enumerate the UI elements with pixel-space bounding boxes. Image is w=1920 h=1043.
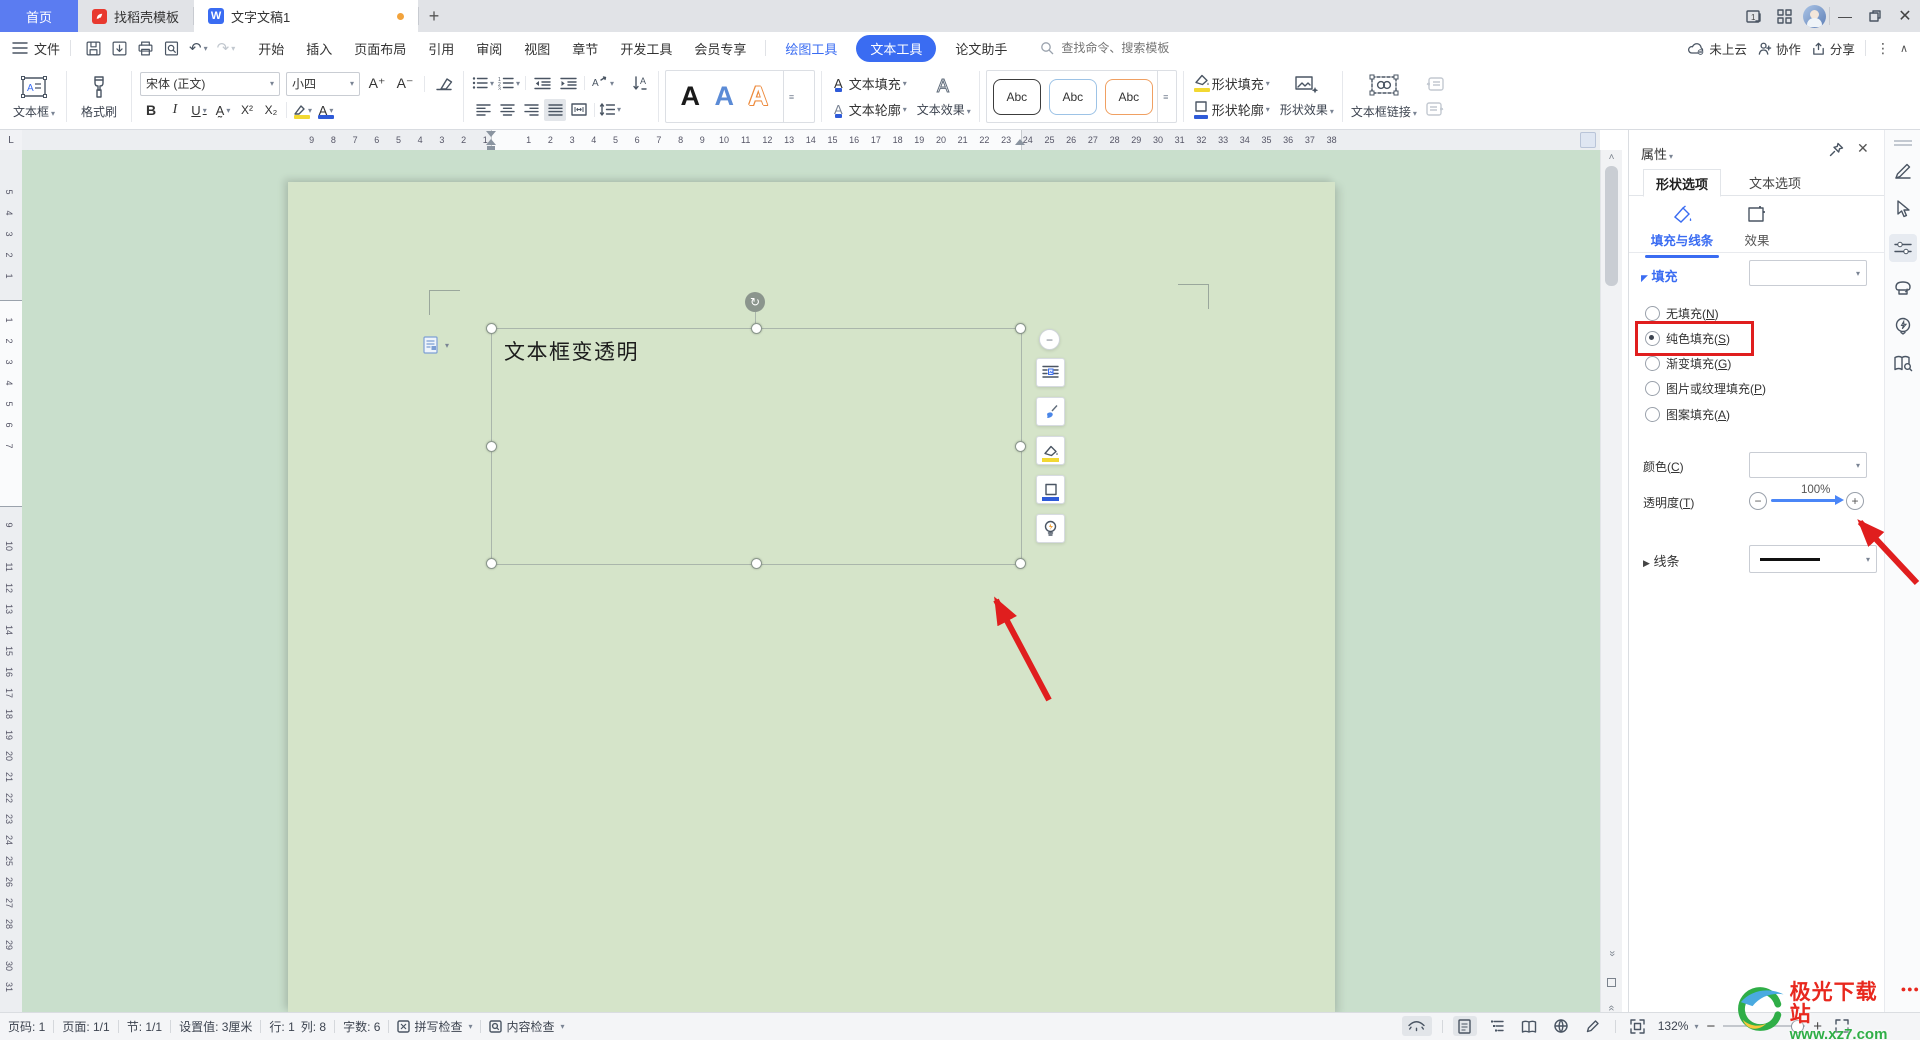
vruler-number: 28 xyxy=(4,917,14,931)
vruler-number: 29 xyxy=(4,938,14,952)
zoom-level[interactable]: 132%▾ xyxy=(1658,1019,1699,1033)
menu-item-3[interactable]: 引用 xyxy=(419,36,463,61)
hruler-number: 26 xyxy=(1064,135,1078,145)
effects-icon xyxy=(1746,204,1768,226)
status-setting-value[interactable]: 设置值: 3厘米 xyxy=(179,1018,252,1035)
vruler-number: 2 xyxy=(4,248,14,262)
handle-bottom-right[interactable] xyxy=(1015,558,1026,569)
hruler-number: 3 xyxy=(435,135,449,145)
unsaved-dot xyxy=(397,13,404,20)
hruler-number: 7 xyxy=(652,135,666,145)
menu-item-4[interactable]: 审阅 xyxy=(467,36,511,61)
highlight-color-button[interactable]: ▾ xyxy=(291,99,313,121)
print-button[interactable] xyxy=(137,40,154,57)
hruler-number: 28 xyxy=(1108,135,1122,145)
menu-item-5[interactable]: 视图 xyxy=(515,36,559,61)
handle-mid-right[interactable] xyxy=(1015,441,1026,452)
transparency-increase-button[interactable]: + xyxy=(1846,492,1864,510)
collaborate-label: 协作 xyxy=(1776,39,1801,58)
properties-sliders-icon[interactable] xyxy=(1889,234,1917,262)
decrease-font-button[interactable]: A⁻ xyxy=(394,73,416,95)
fill-section-header[interactable]: ◤ 填充 xyxy=(1641,266,1678,285)
increase-indent-button[interactable] xyxy=(557,72,579,94)
search-input[interactable] xyxy=(1059,40,1203,56)
hruler-number: 14 xyxy=(804,135,818,145)
shape-gallery-more-button[interactable]: ≡ xyxy=(1157,71,1174,122)
save-button[interactable] xyxy=(85,40,102,57)
hruler-number: 21 xyxy=(956,135,970,145)
transparency-label: 透明度(T) xyxy=(1643,494,1694,511)
vruler-number: 19 xyxy=(4,728,14,742)
search-icon xyxy=(1040,41,1054,55)
site-watermark: 极光下载站 www.xz7.com ●●● xyxy=(1735,982,1920,1038)
home-tab-label: 首页 xyxy=(26,7,52,26)
menu-item-8[interactable]: 会员专享 xyxy=(685,36,755,61)
status-page-count: 页面: 1/1 xyxy=(62,1018,109,1035)
share-icon xyxy=(1811,41,1826,56)
gallery-more-button[interactable]: ≡ xyxy=(783,71,800,122)
textbox-link-icon xyxy=(1367,73,1401,97)
vruler-number: 30 xyxy=(4,959,14,973)
vertical-ruler: 5432112345679101112131415161718192021222… xyxy=(0,150,22,1012)
align-right-button[interactable] xyxy=(520,99,542,121)
hruler-number: 7 xyxy=(348,135,362,145)
hruler-number: 15 xyxy=(826,135,840,145)
collapse-ribbon-icon[interactable]: ∧ xyxy=(1900,42,1908,55)
share-label: 分享 xyxy=(1830,39,1855,58)
text-outline-button[interactable]: A 文本轮廓▾ xyxy=(830,99,909,121)
vruler-number: 1 xyxy=(4,269,14,283)
hruler-number: 31 xyxy=(1173,135,1187,145)
next-link-button[interactable] xyxy=(1425,101,1445,117)
status-line: 行: 1 xyxy=(269,1018,294,1035)
status-page-number: 页码: 1 xyxy=(8,1018,45,1035)
quick-effects-icon[interactable] xyxy=(1892,315,1914,337)
color-dropdown[interactable]: ▾ xyxy=(1749,452,1867,478)
hruler-number: 18 xyxy=(891,135,905,145)
workspace-grid-icon[interactable] xyxy=(1769,0,1799,32)
mini-shape-outline-button[interactable] xyxy=(1036,475,1065,504)
document-canvas[interactable] xyxy=(22,150,1600,1012)
file-menu[interactable]: 文件 xyxy=(34,39,60,58)
vruler-number: 17 xyxy=(4,686,14,700)
vruler-number: 3 xyxy=(4,355,14,369)
text-effects-button[interactable]: 文本效果▾ xyxy=(917,101,971,118)
menu-item-2[interactable]: 页面布局 xyxy=(345,36,415,61)
svg-text:3: 3 xyxy=(498,87,501,91)
sort-button[interactable]: A xyxy=(628,72,650,94)
shape-outline-button[interactable]: 形状轮廓▾ xyxy=(1192,99,1272,121)
red-highlight-box xyxy=(1635,321,1754,356)
bullet-list-button[interactable]: ▾ xyxy=(472,72,494,94)
wps-writer-icon: W xyxy=(208,8,224,24)
collaborate-button[interactable]: 协作 xyxy=(1757,39,1801,58)
subtab-fill-line[interactable]: 填充与线条 xyxy=(1645,204,1719,258)
home-tab[interactable]: 首页 xyxy=(0,0,78,32)
single-window-mode-icon[interactable]: 1 xyxy=(1739,0,1769,32)
tab-stop-selector[interactable]: L xyxy=(0,130,22,150)
text-boundary-mark-right xyxy=(1178,284,1209,309)
redo-button[interactable]: ↷▾ xyxy=(217,39,236,57)
fill-option-label-3[interactable]: 图片或纹理填充(P) xyxy=(1666,380,1766,397)
tab-shape-options[interactable]: 形状选项 xyxy=(1643,169,1721,197)
content-check-button[interactable]: 内容检查▾ xyxy=(489,1018,564,1035)
vruler-number: 12 xyxy=(4,581,14,595)
vruler-number: 24 xyxy=(4,833,14,847)
text-effects-icon: A xyxy=(933,75,955,95)
text-format-group: A 文本填充▾ A 文本轮廓▾ xyxy=(826,66,913,127)
paragraph-group: ▾ 123▾ A▾ A xyxy=(468,66,654,127)
hruler-number: 30 xyxy=(1151,135,1165,145)
layout-options-button[interactable]: ▾ xyxy=(423,336,449,355)
vruler-number: 6 xyxy=(4,418,14,432)
menu-bar: 文件 ↶▾ ↷▾ 开始插入页面布局引用审阅视图章节开发工具会员专享 绘图工具 文… xyxy=(0,32,1920,64)
hruler-number: 16 xyxy=(847,135,861,145)
svg-text:A: A xyxy=(937,76,949,95)
textbox-text[interactable]: 文本框变透明 xyxy=(504,336,639,366)
hruler-number: 8 xyxy=(326,135,340,145)
format-painter-label: 格式刷 xyxy=(81,103,117,120)
shape-style-blue[interactable]: Abc xyxy=(1049,79,1097,115)
docer-icon xyxy=(92,9,107,24)
character-scale-button[interactable]: A▾ xyxy=(590,72,614,94)
shape-style-black[interactable]: Abc xyxy=(993,79,1041,115)
align-left-button[interactable] xyxy=(472,99,494,121)
subscript-button[interactable]: X₂ xyxy=(260,99,282,121)
menu-item-paper-assistant[interactable]: 论文助手 xyxy=(946,36,1016,61)
hruler-number: 37 xyxy=(1303,135,1317,145)
vruler-number: 15 xyxy=(4,644,14,658)
hruler-number: 34 xyxy=(1238,135,1252,145)
menu-item-6[interactable]: 章节 xyxy=(563,36,607,61)
watermark-logo xyxy=(1735,982,1786,1036)
shape-effects-button[interactable]: 形状效果▾ xyxy=(1280,101,1334,118)
hamburger-icon[interactable]: 文件 xyxy=(12,39,60,58)
vruler-number: 14 xyxy=(4,623,14,637)
shape-effects-icon xyxy=(1294,75,1320,95)
font-size-select[interactable]: 小四▾ xyxy=(286,72,360,96)
hruler-number: 2 xyxy=(543,135,557,145)
text-fill-button[interactable]: A 文本填充▾ xyxy=(830,72,909,94)
shape-style-orange[interactable]: Abc xyxy=(1105,79,1153,115)
document-tab[interactable]: W 文字文稿1 xyxy=(194,0,418,32)
close-panel-icon[interactable]: ✕ xyxy=(1857,140,1869,157)
page-view-icon[interactable] xyxy=(1453,1016,1477,1036)
vruler-number: 23 xyxy=(4,812,14,826)
transparency-decrease-button[interactable]: − xyxy=(1749,492,1767,510)
scrollbar-thumb[interactable] xyxy=(1605,166,1618,286)
browse-object-button[interactable] xyxy=(1604,978,1619,990)
cloud-off-icon xyxy=(1687,41,1705,55)
hruler-number: 19 xyxy=(912,135,926,145)
font-color-button[interactable]: A▾ xyxy=(315,99,337,121)
status-column: 列: 8 xyxy=(301,1018,326,1035)
text-style-black[interactable]: A xyxy=(681,81,701,112)
transparency-slider-thumb[interactable] xyxy=(1835,495,1844,505)
fill-option-label-4[interactable]: 图案填充(A) xyxy=(1666,406,1730,423)
textbox-link-button[interactable]: 文本框链接▾ xyxy=(1351,103,1417,120)
read-mode-icon[interactable] xyxy=(1517,1016,1541,1036)
line-style-dropdown[interactable]: ▾ xyxy=(1749,545,1877,573)
properties-panel: 属性▾ ✕ 形状选项 文本选项 填充与线条 效果 ◤ 填充 ▾ 无填充(N)纯色… xyxy=(1628,130,1884,1012)
hruler-number: 9 xyxy=(305,135,319,145)
mini-shape-fill-button[interactable] xyxy=(1036,436,1065,465)
rotation-handle[interactable]: ↻ xyxy=(745,292,765,312)
cloud-status-button[interactable]: 未上云 xyxy=(1687,39,1747,58)
vruler-number: 1 xyxy=(4,313,14,327)
new-tab-button[interactable]: + xyxy=(419,0,449,32)
text-style-gallery: A A A ≡ xyxy=(665,70,815,123)
fill-option-label-0[interactable]: 无填充(N) xyxy=(1666,305,1719,322)
content-check-icon xyxy=(489,1020,502,1033)
menu-items: 开始插入页面布局引用审阅视图章节开发工具会员专享 xyxy=(249,36,755,61)
text-effects-group: A 文本效果▾ xyxy=(913,66,975,127)
hruler-number: 4 xyxy=(587,135,601,145)
distribute-button[interactable] xyxy=(568,99,590,121)
vruler-number: 4 xyxy=(4,376,14,390)
paint-bucket-icon xyxy=(1671,204,1693,226)
docer-template-tab[interactable]: 找稻壳模板 xyxy=(78,0,193,32)
first-line-indent-marker[interactable] xyxy=(486,131,496,137)
font-name-select[interactable]: 宋体 (正文)▾ xyxy=(140,72,280,96)
menu-item-1[interactable]: 插入 xyxy=(297,36,341,61)
shape-fill-button[interactable]: 形状填充▾ xyxy=(1192,72,1272,94)
fill-option-radio-3[interactable] xyxy=(1645,381,1660,396)
eye-protection-icon[interactable] xyxy=(1402,1016,1432,1036)
layout-options-icon xyxy=(423,336,440,355)
minimize-button[interactable]: — xyxy=(1830,0,1860,32)
vruler-number: 13 xyxy=(4,602,14,616)
handle-top-mid[interactable] xyxy=(751,323,762,334)
vruler-number: 11 xyxy=(4,560,14,574)
hruler-number: 6 xyxy=(370,135,384,145)
quick-style-brush-button[interactable] xyxy=(1036,397,1065,426)
collaborate-icon xyxy=(1757,41,1772,56)
spell-check-icon xyxy=(397,1020,410,1033)
line-section-header[interactable]: ▶ 线条 xyxy=(1643,551,1680,570)
line-sample xyxy=(1760,558,1820,561)
italic-button[interactable]: I xyxy=(164,99,186,121)
ribbon-toolbar: A 文本框▾ 格式刷 宋体 (正文)▾ 小四▾ A⁺ A⁻ B I U▾ A̰▾… xyxy=(0,64,1920,130)
textbox-link-nav xyxy=(1421,66,1449,127)
hruler-number: 25 xyxy=(1043,135,1057,145)
superscript-button[interactable]: X² xyxy=(236,99,258,121)
hruler-number: 6 xyxy=(630,135,644,145)
pin-panel-icon[interactable] xyxy=(1829,142,1844,157)
previous-page-button[interactable]: » xyxy=(1608,946,1615,961)
vruler-number: 22 xyxy=(4,791,14,805)
wrap-text-button[interactable] xyxy=(1036,358,1065,387)
handle-mid-left[interactable] xyxy=(486,441,497,452)
outline-view-icon[interactable] xyxy=(1485,1016,1509,1036)
vruler-number: 5 xyxy=(4,397,14,411)
transparency-value: 100% xyxy=(1801,484,1830,496)
fill-preset-dropdown[interactable]: ▾ xyxy=(1749,260,1867,286)
hanging-indent-marker[interactable] xyxy=(486,139,496,145)
more-options-icon[interactable]: ⋮ xyxy=(1876,40,1890,57)
vruler-number: 16 xyxy=(4,665,14,679)
recommend-idea-button[interactable] xyxy=(1036,514,1065,543)
seal-icon[interactable] xyxy=(1892,277,1914,299)
vruler-number: 31 xyxy=(4,980,14,994)
vruler-number: 2 xyxy=(4,334,14,348)
text-style-blue[interactable]: A xyxy=(715,81,735,112)
hruler-number: 36 xyxy=(1281,135,1295,145)
print-preview-button[interactable] xyxy=(163,40,180,57)
svg-text:A: A xyxy=(27,83,34,94)
textbox-link-group: 文本框链接▾ xyxy=(1347,66,1421,127)
horizontal-ruler: 9876543211234567891011121314151617181920… xyxy=(22,130,1600,150)
textbox-button-label: 文本框 xyxy=(13,105,49,119)
hruler-number: 12 xyxy=(760,135,774,145)
increase-font-button[interactable]: A⁺ xyxy=(366,73,388,95)
share-button[interactable]: 分享 xyxy=(1811,39,1855,58)
scroll-up-arrow[interactable]: ˄ xyxy=(1604,152,1619,163)
hruler-number: 13 xyxy=(782,135,796,145)
undo-button[interactable]: ↶▾ xyxy=(189,39,208,57)
drag-handle[interactable] xyxy=(1894,140,1912,142)
text-boundary-mark-left xyxy=(429,290,460,315)
bold-button[interactable]: B xyxy=(140,99,162,121)
cloud-status-label: 未上云 xyxy=(1709,39,1747,58)
hruler-number: 22 xyxy=(977,135,991,145)
quick-access-toolbar: ↶▾ ↷▾ xyxy=(85,39,235,57)
command-search[interactable] xyxy=(1040,40,1203,56)
reference-book-icon[interactable] xyxy=(1892,352,1914,374)
text-style-orange[interactable]: A xyxy=(749,81,769,112)
hruler-number: 35 xyxy=(1260,135,1274,145)
vruler-number: 20 xyxy=(4,749,14,763)
menu-item-7[interactable]: 开发工具 xyxy=(611,36,681,61)
handle-top-left[interactable] xyxy=(486,323,497,334)
vruler-number: 21 xyxy=(4,770,14,784)
zoom-out-button[interactable]: − xyxy=(1706,1018,1715,1035)
hruler-number: 33 xyxy=(1216,135,1230,145)
shape-style-gallery: Abc Abc Abc ≡ xyxy=(986,70,1177,123)
web-layout-icon[interactable] xyxy=(1549,1016,1573,1036)
vruler-number: 5 xyxy=(4,185,14,199)
vruler-number: 26 xyxy=(4,875,14,889)
hruler-number: 11 xyxy=(739,135,753,145)
shape-format-group: 形状填充▾ 形状轮廓▾ xyxy=(1188,66,1276,127)
hruler-number: 32 xyxy=(1194,135,1208,145)
vruler-number: 7 xyxy=(4,439,14,453)
svg-text:A: A xyxy=(592,78,599,89)
align-center-button[interactable] xyxy=(496,99,518,121)
vruler-number: 3 xyxy=(4,227,14,241)
hruler-number: 2 xyxy=(457,135,471,145)
vruler-number: 25 xyxy=(4,854,14,868)
hruler-number: 9 xyxy=(695,135,709,145)
close-button[interactable]: ✕ xyxy=(1890,0,1920,32)
edit-pen-icon[interactable] xyxy=(1892,160,1914,182)
select-cursor-icon[interactable] xyxy=(1892,198,1914,220)
insert-textbox-button[interactable]: A 文本框▾ xyxy=(6,66,62,127)
avatar[interactable] xyxy=(1799,0,1829,32)
justify-button[interactable] xyxy=(544,99,566,121)
handle-bottom-left[interactable] xyxy=(486,558,497,569)
hruler-number: 5 xyxy=(609,135,623,145)
shape-effects-group: 形状效果▾ xyxy=(1276,66,1338,127)
hruler-number: 29 xyxy=(1129,135,1143,145)
hruler-number: 8 xyxy=(674,135,688,145)
fill-option-radio-4[interactable] xyxy=(1645,407,1660,422)
tab-text-options[interactable]: 文本选项 xyxy=(1737,169,1813,195)
hruler-number: 38 xyxy=(1325,135,1339,145)
docer-tab-label: 找稻壳模板 xyxy=(114,7,179,26)
fill-option-label-2[interactable]: 渐变填充(G) xyxy=(1666,355,1731,372)
fit-page-icon[interactable] xyxy=(1626,1016,1650,1036)
underline-button[interactable]: U▾ xyxy=(188,99,210,121)
watermark-dots: ●●● xyxy=(1901,984,1920,994)
panel-title: 属性▾ xyxy=(1641,144,1673,163)
export-button[interactable] xyxy=(111,40,128,57)
hruler-number: 1 xyxy=(522,135,536,145)
status-word-count[interactable]: 字数: 6 xyxy=(343,1018,380,1035)
collapse-mini-toolbar-button[interactable]: − xyxy=(1039,329,1060,350)
ruler-toggle-icon[interactable] xyxy=(1580,132,1596,148)
vruler-number: 27 xyxy=(4,896,14,910)
handle-top-right[interactable] xyxy=(1015,323,1026,334)
window-tab-bar: 首页 找稻壳模板 W 文字文稿1 + 1 — ✕ xyxy=(0,0,1920,32)
write-mode-icon[interactable] xyxy=(1581,1016,1605,1036)
handle-bottom-mid[interactable] xyxy=(751,558,762,569)
vruler-number: 4 xyxy=(4,206,14,220)
clear-format-eraser-icon[interactable] xyxy=(433,73,455,95)
color-label: 颜色(C) xyxy=(1643,458,1684,475)
svg-text:1: 1 xyxy=(1751,13,1756,22)
hruler-number: 20 xyxy=(934,135,948,145)
font-group: 宋体 (正文)▾ 小四▾ A⁺ A⁻ B I U▾ A̰▾ X² X₂ ▾ A▾ xyxy=(136,66,459,127)
char-shading-button[interactable]: A̰▾ xyxy=(212,99,234,121)
prev-link-button[interactable] xyxy=(1425,76,1445,92)
vruler-number: 18 xyxy=(4,707,14,721)
menu-item-text-tools-active[interactable]: 文本工具 xyxy=(856,35,936,62)
subtab-effects[interactable]: 效果 xyxy=(1733,204,1781,249)
restore-button[interactable] xyxy=(1860,0,1890,32)
menu-item-0[interactable]: 开始 xyxy=(249,36,293,61)
decrease-indent-button[interactable] xyxy=(531,72,553,94)
menu-item-drawing-tools[interactable]: 绘图工具 xyxy=(776,36,846,61)
hruler-number: 3 xyxy=(565,135,579,145)
fill-option-radio-0[interactable] xyxy=(1645,306,1660,321)
hruler-number: 23 xyxy=(999,135,1013,145)
fill-option-radio-2[interactable] xyxy=(1645,356,1660,371)
hruler-number: 4 xyxy=(413,135,427,145)
side-toolbar xyxy=(1884,130,1920,1012)
right-indent-marker[interactable] xyxy=(1015,139,1025,145)
vruler-number: 10 xyxy=(4,539,14,553)
vruler-number: 9 xyxy=(4,518,14,532)
hruler-number: 10 xyxy=(717,135,731,145)
transparency-slider-track[interactable] xyxy=(1771,499,1841,502)
hruler-number: 27 xyxy=(1086,135,1100,145)
document-tab-label: 文字文稿1 xyxy=(231,7,390,26)
spell-check-button[interactable]: 拼写检查▾ xyxy=(397,1018,472,1035)
hruler-number: 17 xyxy=(869,135,883,145)
svg-text:A: A xyxy=(640,76,646,86)
format-painter-button[interactable]: 格式刷 xyxy=(71,66,127,127)
status-section: 节: 1/1 xyxy=(127,1018,162,1035)
line-spacing-button[interactable]: ▾ xyxy=(599,99,621,121)
hruler-number: 5 xyxy=(392,135,406,145)
numbered-list-button[interactable]: 123▾ xyxy=(498,72,520,94)
vertical-scrollbar[interactable]: ˄ » » xyxy=(1600,150,1622,1012)
